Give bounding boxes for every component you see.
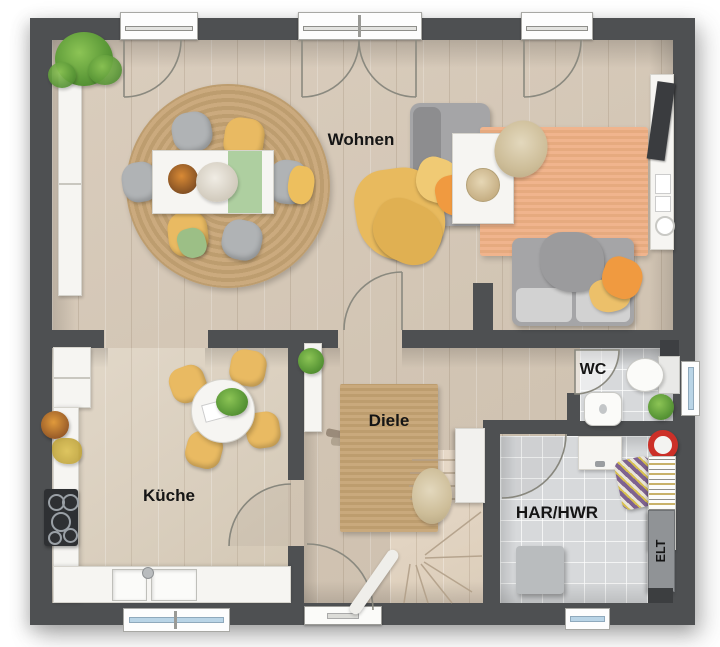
dried-grass-stairs [412, 468, 452, 524]
wc-plant [648, 394, 674, 420]
electrical-panel: ELT [648, 510, 675, 592]
wc-sink [584, 392, 622, 426]
room-label-utility: HAR/HWR [516, 503, 598, 523]
cabinet-knob [595, 461, 605, 467]
toilet-bowl [626, 358, 664, 392]
wc-cistern-box [660, 340, 679, 357]
washer-box [516, 546, 564, 594]
sink-drain [599, 404, 607, 414]
stair-landing [455, 428, 485, 503]
room-label-wc: WC [580, 361, 607, 379]
room-label-hall: Diele [369, 411, 410, 431]
floor-plan: Wohnen Küche Diele [0, 0, 720, 647]
label-electrical: ELT [654, 540, 668, 563]
corner-recess [648, 588, 673, 603]
stairs-treads [0, 0, 720, 647]
